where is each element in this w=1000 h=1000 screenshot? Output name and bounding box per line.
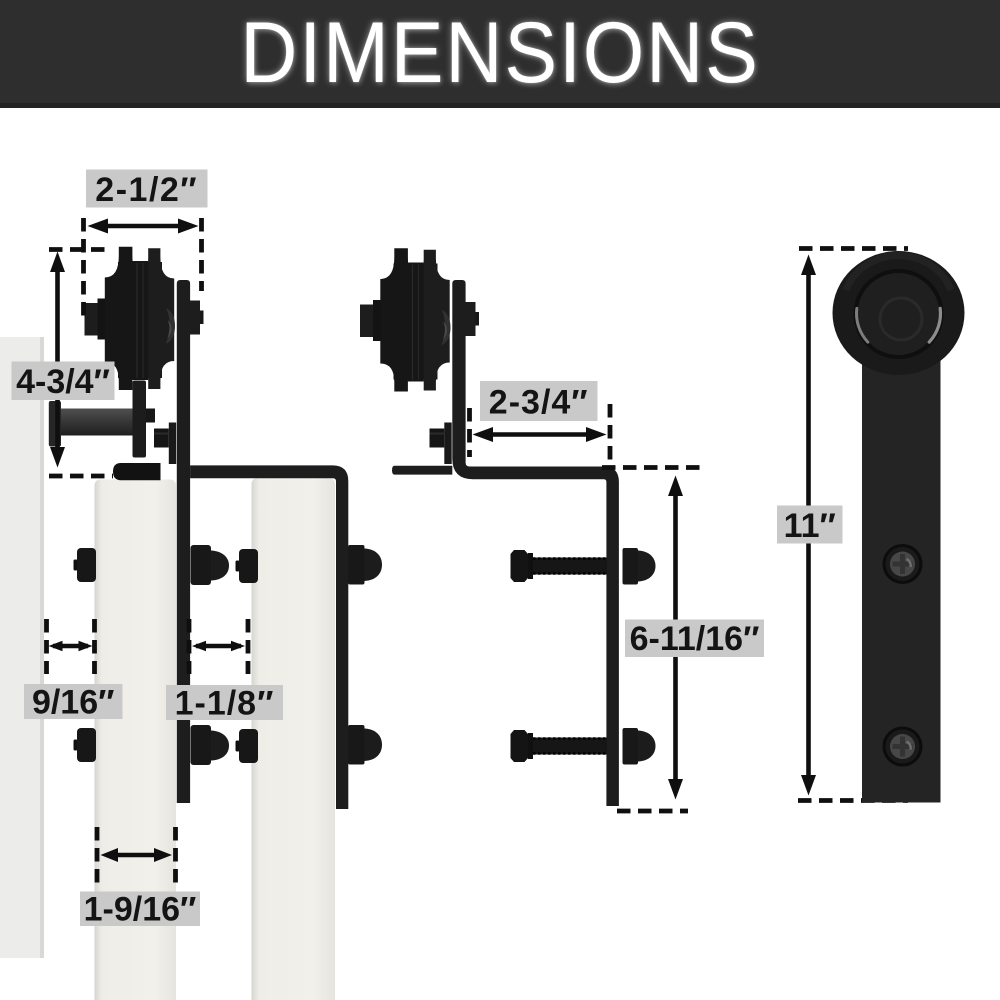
svg-text:6-11/16″: 6-11/16″	[630, 620, 760, 658]
svg-text:11″: 11″	[784, 507, 836, 545]
svg-text:4-3/4″: 4-3/4″	[16, 363, 110, 401]
svg-text:9/16″: 9/16″	[32, 684, 114, 722]
svg-text:2-3/4″: 2-3/4″	[489, 384, 589, 422]
svg-text:2-1/2″: 2-1/2″	[95, 171, 198, 209]
svg-text:1-1/8″: 1-1/8″	[175, 685, 275, 723]
svg-text:1-9/16″: 1-9/16″	[84, 891, 197, 929]
